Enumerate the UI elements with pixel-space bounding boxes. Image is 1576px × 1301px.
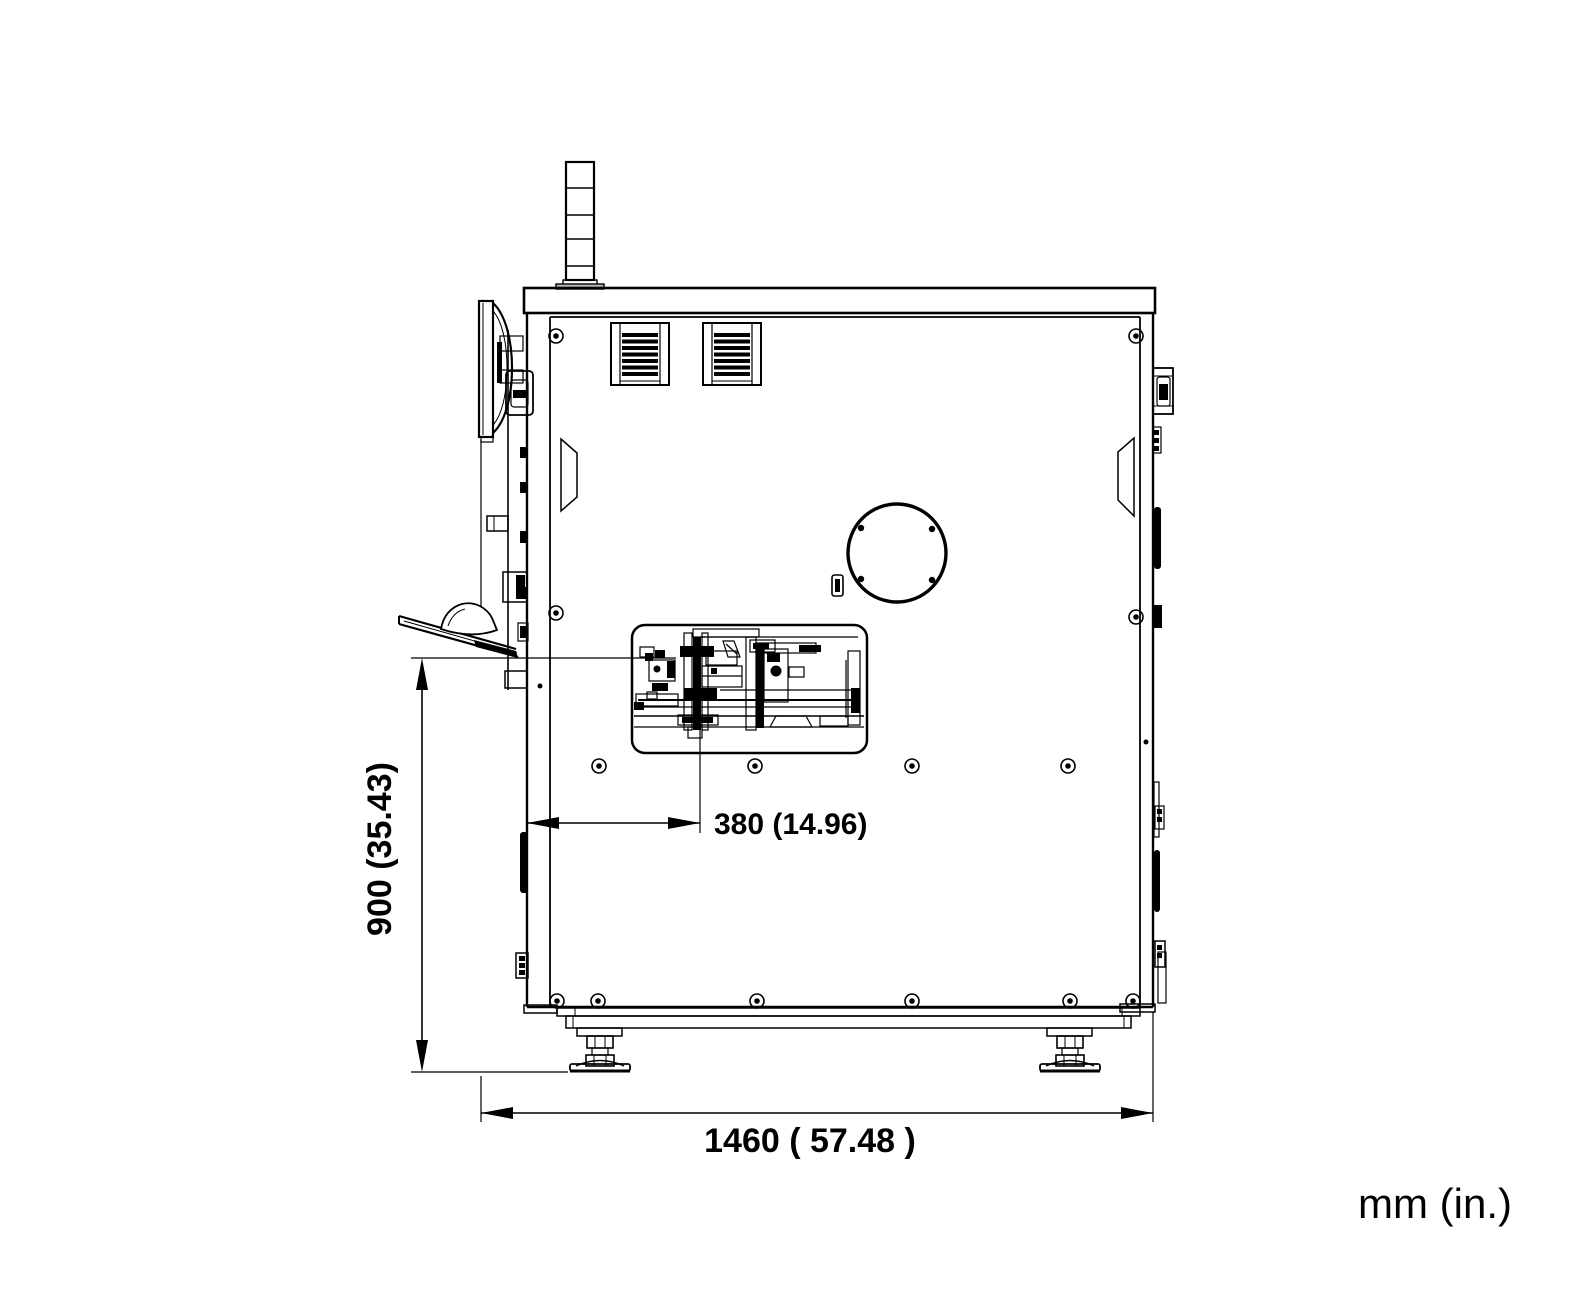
- dimension-height: 900 (35.43): [361, 658, 676, 1072]
- cabinet-top-cap: [524, 288, 1155, 313]
- rear-hinges: [1120, 427, 1166, 1012]
- leveling-foot-left: [570, 1036, 630, 1073]
- leveling-foot-right: [1040, 1036, 1100, 1073]
- panel-screws: [538, 329, 1149, 1008]
- units-note: mm (in.): [1358, 1180, 1512, 1227]
- arrowhead-up-icon: [416, 658, 428, 690]
- keyboard-tray: [399, 603, 518, 658]
- fan-opening: [848, 504, 946, 602]
- arrowhead-right-icon: [1121, 1107, 1153, 1119]
- handle-cutout-left: [561, 439, 577, 511]
- dimension-offset: 380 (14.96): [527, 712, 867, 841]
- arrowhead-down-icon: [416, 1040, 428, 1072]
- dimension-width-label: 1460 ( 57.48 ): [704, 1122, 916, 1160]
- screw: [748, 759, 762, 773]
- front-latch-block: [503, 572, 527, 602]
- screw: [549, 329, 563, 343]
- handle-cutout-right: [1118, 438, 1134, 516]
- arrowhead-right-icon: [668, 817, 700, 829]
- signal-tower-light: [556, 162, 604, 289]
- dimension-width: 1460 ( 57.48 ): [481, 1012, 1153, 1160]
- dimension-height-label: 900 (35.43): [361, 762, 399, 936]
- vent-right: [703, 323, 761, 385]
- mouse: [441, 603, 497, 634]
- arrowhead-left-icon: [481, 1107, 513, 1119]
- screw: [549, 606, 563, 620]
- screw: [1061, 759, 1075, 773]
- machine-side-view-drawing: 900 (35.43) 380 (14.96) 1460 ( 57.48 ) m…: [0, 0, 1576, 1301]
- arrowhead-left-icon: [527, 817, 559, 829]
- vent-left: [611, 323, 669, 385]
- rear-latch-handle: [1153, 368, 1173, 414]
- dimension-offset-label: 380 (14.96): [714, 808, 867, 841]
- screw: [592, 759, 606, 773]
- mechanism: [634, 629, 864, 738]
- cabinet-frame: [527, 313, 1153, 1007]
- technical-drawing-page: 900 (35.43) 380 (14.96) 1460 ( 57.48 ) m…: [0, 0, 1576, 1301]
- side-tab: [487, 516, 508, 531]
- connector-port: [832, 575, 843, 596]
- monitor-mount-rail: [481, 330, 528, 690]
- base-frame: [524, 1005, 1140, 1036]
- screw: [905, 759, 919, 773]
